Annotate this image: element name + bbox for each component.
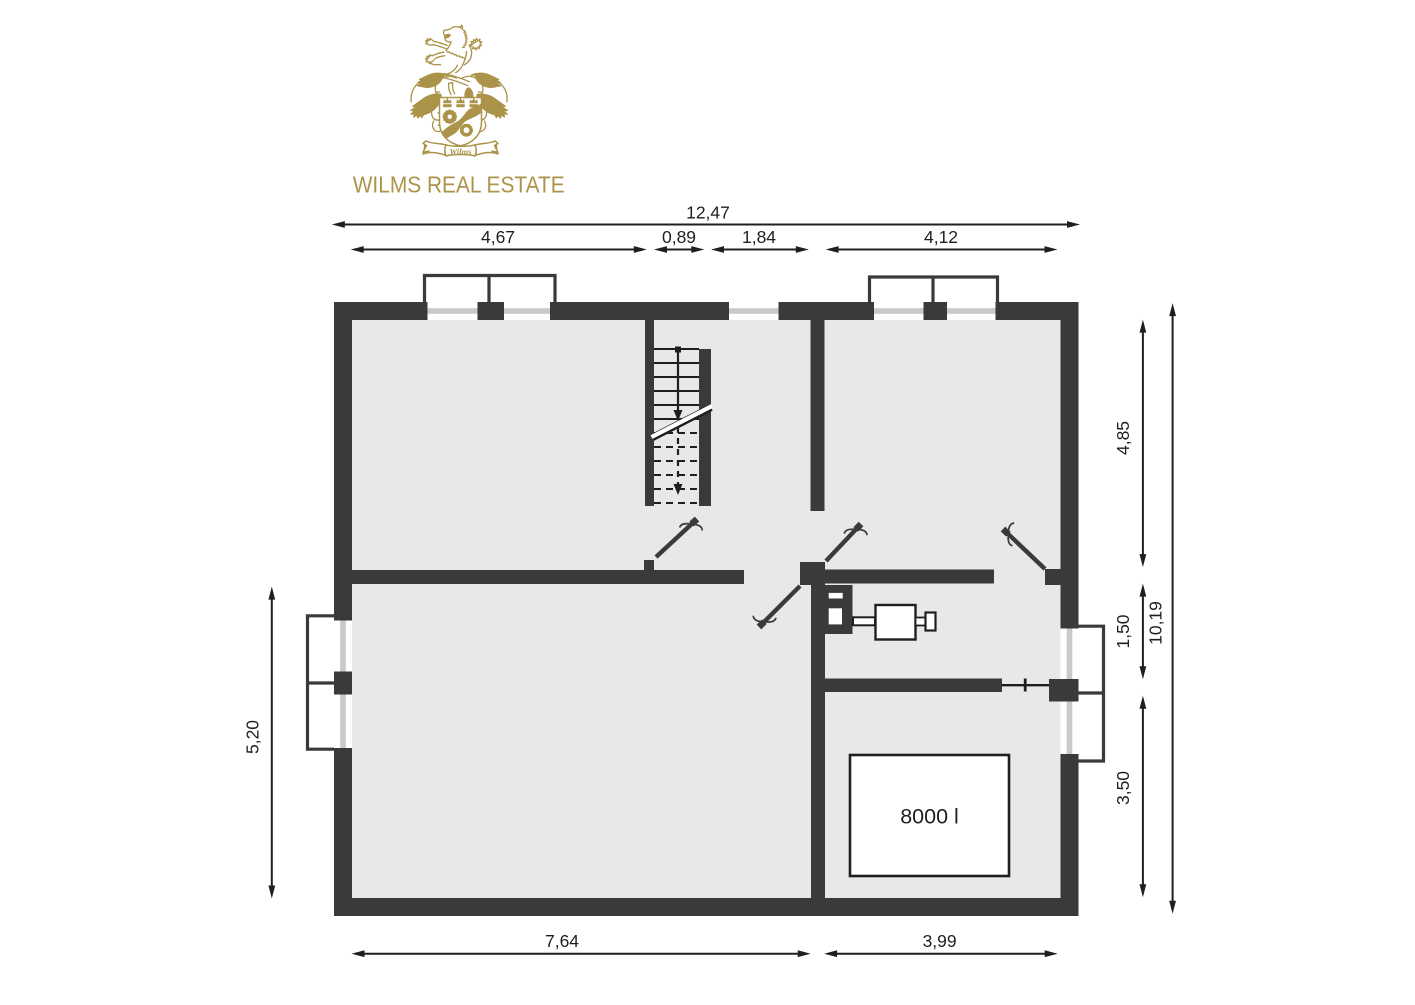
svg-text:7,64: 7,64 [545, 931, 579, 951]
svg-text:3,99: 3,99 [923, 931, 957, 951]
svg-text:4,85: 4,85 [1113, 421, 1133, 455]
svg-text:5,20: 5,20 [243, 720, 263, 754]
svg-text:8000 l: 8000 l [900, 805, 959, 829]
svg-text:4,12: 4,12 [924, 227, 958, 247]
svg-text:0,89: 0,89 [662, 227, 696, 247]
svg-text:Wilms: Wilms [449, 147, 472, 157]
svg-text:12,47: 12,47 [686, 203, 730, 223]
svg-text:1,84: 1,84 [742, 227, 776, 247]
svg-text:1,50: 1,50 [1113, 614, 1133, 648]
svg-text:4,67: 4,67 [481, 227, 515, 247]
svg-text:3,50: 3,50 [1113, 771, 1133, 805]
svg-text:10,19: 10,19 [1146, 601, 1166, 645]
svg-text:WILMS REAL ESTATE: WILMS REAL ESTATE [353, 172, 565, 198]
